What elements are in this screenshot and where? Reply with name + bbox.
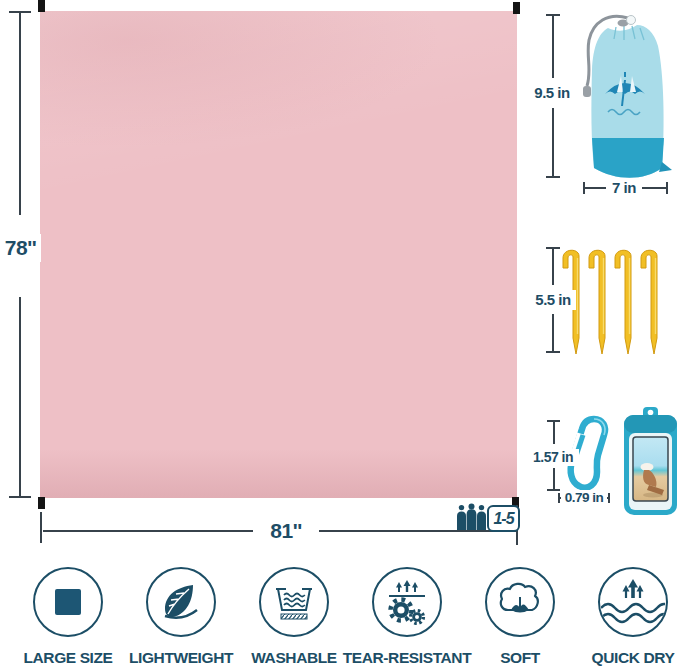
feature-large-size [33, 567, 103, 637]
feature-label: QUICK DRY [558, 649, 679, 667]
dimension-line-segment [19, 297, 21, 497]
blanket-height-label: 78'' [0, 234, 41, 262]
gears-icon [384, 579, 430, 625]
feature-tear-resistant [372, 567, 442, 637]
dimension-cap [608, 493, 610, 503]
cotton-icon [497, 579, 543, 625]
blanket-width-label: 81'' [255, 518, 317, 544]
corner-loop-top-left [38, 0, 45, 12]
dimension-line-segment [552, 249, 554, 285]
dimension-line-segment [43, 530, 253, 532]
beach-blanket [40, 11, 517, 498]
capacity-badge: 1-5 [487, 505, 520, 532]
feature-washable [259, 567, 329, 637]
dimension-line-segment [552, 108, 554, 176]
dimension-cap [666, 182, 668, 194]
dimension-line-segment [585, 187, 607, 189]
dimension-line-segment [552, 314, 554, 351]
feature-soft [485, 567, 555, 637]
capacity-label: 1-5 [493, 510, 513, 528]
stake-length-label: 5.5 in [530, 290, 576, 310]
square-icon [48, 582, 88, 622]
waterproof-phone-pouch [623, 407, 678, 517]
dimension-line-segment [552, 16, 554, 78]
dimension-cap [9, 496, 31, 498]
dimension-cap [546, 351, 560, 353]
waves-arrows-icon [601, 570, 665, 634]
corner-loop-bottom-left [38, 497, 45, 509]
product-infographic: 78'' 81'' 1-5 [0, 0, 679, 671]
carabiner-height-label: 1.57 in [527, 449, 579, 466]
dimension-cap [546, 176, 560, 178]
dimension-line-segment [642, 187, 666, 189]
dimension-line-segment [19, 13, 21, 215]
feature-lightweight [146, 567, 216, 637]
leaf-icon [159, 580, 203, 624]
bag-height-label: 9.5 in [528, 83, 576, 103]
bag-width-label: 7 in [606, 179, 642, 197]
people-group-icon [455, 503, 488, 531]
dimension-line-segment [553, 422, 555, 444]
drawstring-bag [578, 12, 678, 184]
wash-tub-icon [272, 580, 316, 624]
tent-stakes [561, 246, 661, 356]
dimension-cap [40, 512, 42, 543]
dimension-line-segment [553, 468, 555, 489]
feature-quick-dry [598, 567, 668, 637]
dimension-cap [547, 489, 560, 491]
corner-loop-top-right [513, 2, 520, 14]
carabiner-width-label: 0.79 in [561, 490, 607, 506]
